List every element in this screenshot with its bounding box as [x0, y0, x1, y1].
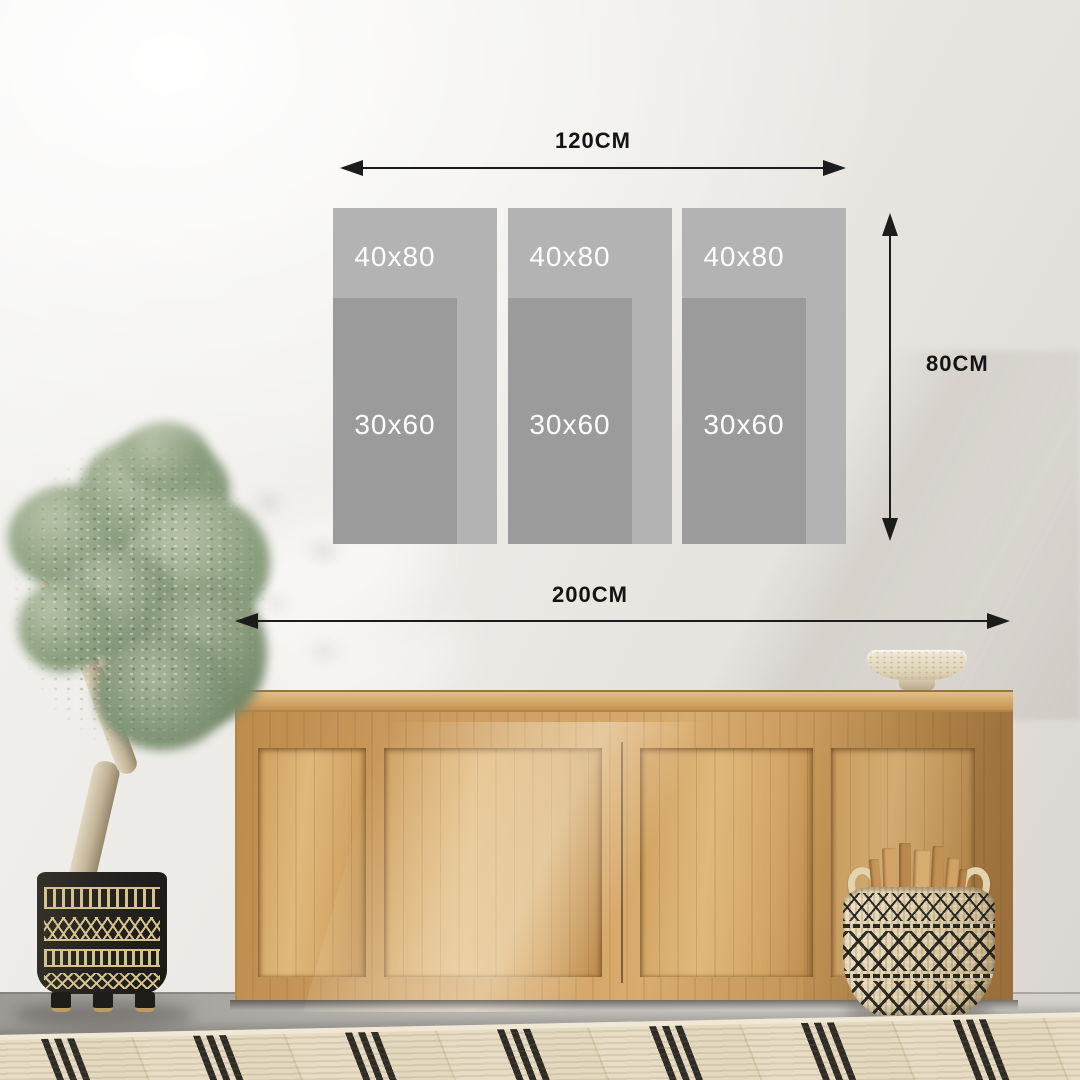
panel-inner-size [508, 298, 632, 544]
bowl-cup [867, 650, 967, 680]
basket-diamond-band [843, 893, 995, 921]
arrow-up-head-icon [882, 213, 898, 236]
panel-size-bottom-label: 30x60 [508, 406, 632, 444]
pot-pattern-band [44, 887, 160, 909]
pot-foot [93, 992, 113, 1012]
pot-foot [135, 992, 155, 1012]
panel-size-top-label: 40x80 [508, 238, 632, 276]
arrow-right-head-icon [823, 160, 846, 176]
room-scene: 40x80 30x60 40x80 30x60 40x80 30x60 120C… [0, 0, 1080, 1080]
black-tribal-pattern-pot [37, 872, 167, 994]
tree-foliage-texture [5, 430, 275, 760]
basket-body [843, 887, 995, 1019]
pot-pattern-band [44, 917, 160, 941]
basket-diamond-band [843, 981, 995, 1015]
arrow-line [354, 167, 832, 170]
wall-diagonal-shade [630, 350, 1080, 720]
basket-diamond-band [843, 931, 995, 971]
width-dimension-label: 120CM [340, 128, 846, 154]
panel-size-top-label: 40x80 [682, 238, 806, 276]
stone-pedestal-bowl [867, 650, 967, 690]
basket-stripe [843, 974, 995, 978]
woven-basket [843, 843, 995, 1021]
pot-foot [51, 992, 71, 1012]
sideboard-top-surface [235, 690, 1013, 712]
pot-pattern-band [44, 949, 160, 967]
basket-stripe [843, 924, 995, 928]
pot-pattern-band [44, 973, 160, 989]
width-dimension-arrow [340, 160, 846, 176]
olive-bonsai-tree [0, 430, 300, 1030]
panel-size-bottom-label: 30x60 [333, 406, 457, 444]
panel-size-top-label: 40x80 [333, 238, 457, 276]
arrow-left-head-icon [340, 160, 363, 176]
